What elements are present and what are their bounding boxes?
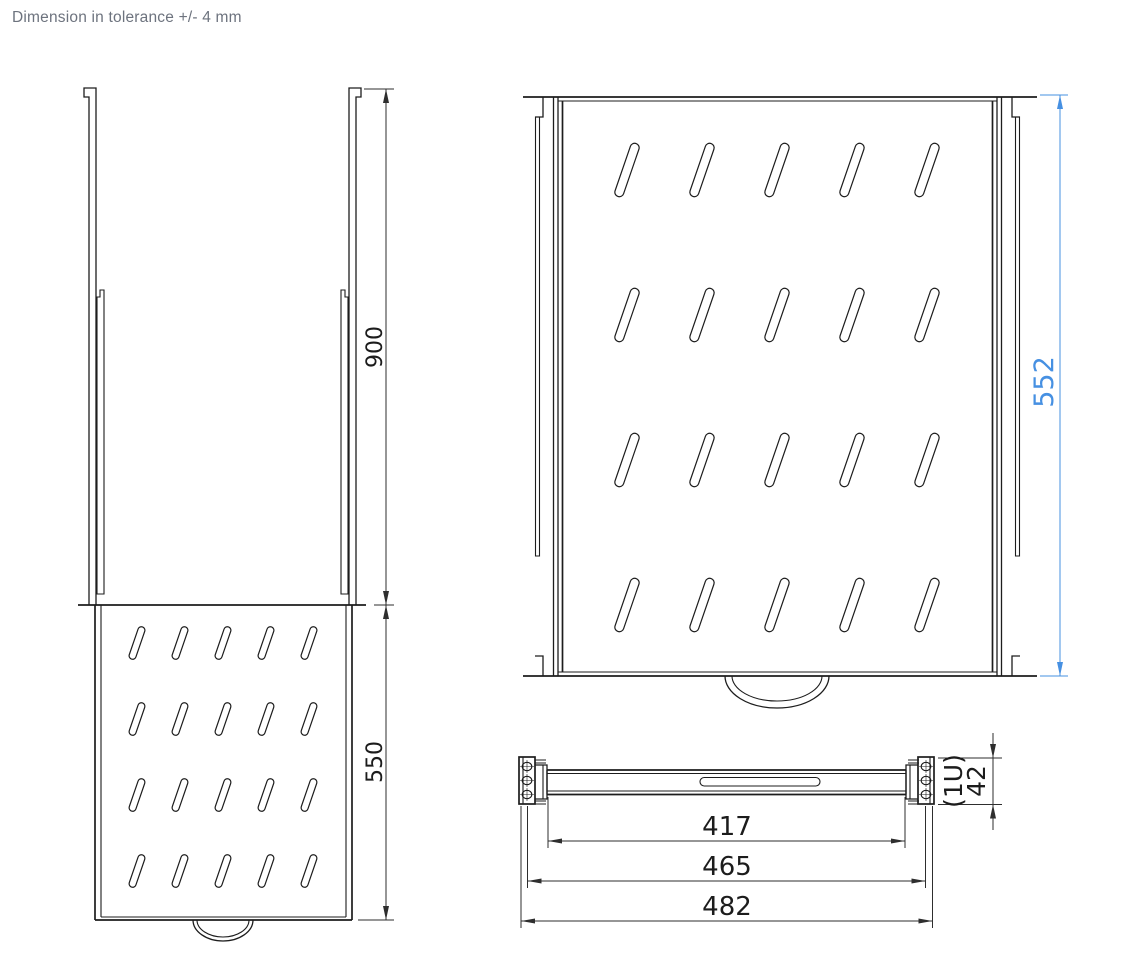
side-left-slide-rail <box>97 290 104 594</box>
arrowhead <box>548 839 562 844</box>
vent-slot <box>914 577 941 633</box>
top-handle <box>725 676 829 708</box>
vent-slot <box>128 626 146 660</box>
top-left-rail <box>536 97 563 676</box>
drawing-canvas: Dimension in tolerance +/- 4 mm <box>0 0 1147 966</box>
vent-slot <box>689 577 716 633</box>
top-right-rail <box>993 97 1020 676</box>
vent-slot <box>300 626 318 660</box>
vent-slot <box>614 142 641 198</box>
arrowhead <box>1057 662 1063 676</box>
vent-slot <box>614 577 641 633</box>
vent-slot <box>300 854 318 888</box>
vent-slot <box>614 287 641 343</box>
vent-slot <box>171 778 189 812</box>
vent-slot <box>839 577 866 633</box>
vent-slot <box>689 142 716 198</box>
arrowhead <box>383 89 389 103</box>
front-right-block <box>906 765 918 799</box>
vent-slot <box>914 287 941 343</box>
front-left-block <box>535 765 547 799</box>
vent-slot <box>689 432 716 488</box>
top-view <box>523 97 1037 708</box>
technical-drawing: 900 550 <box>0 0 1147 966</box>
dim-label-552: 552 <box>1029 356 1060 408</box>
vent-slot <box>764 142 791 198</box>
side-vent-slots <box>128 626 318 888</box>
vent-slot <box>171 854 189 888</box>
vent-slot <box>171 702 189 736</box>
vent-slot <box>257 626 275 660</box>
front-view <box>519 757 934 804</box>
vent-slot <box>128 778 146 812</box>
dim-shelf-depth-top: 552 <box>1029 95 1068 676</box>
dim-rail-length: 900 <box>358 89 394 920</box>
dim-label-550: 550 <box>363 741 388 783</box>
vent-slot <box>764 287 791 343</box>
side-view <box>78 88 366 941</box>
dim-label-42: 42 <box>962 765 991 797</box>
vent-slot <box>839 287 866 343</box>
dim-width-inner: 417 <box>548 797 905 848</box>
arrowhead <box>891 839 905 844</box>
front-right-bracket <box>906 757 934 804</box>
screw-holes-right <box>919 760 933 801</box>
dim-height-1u: (1U) 42 <box>938 733 1002 830</box>
front-left-bracket <box>519 757 547 804</box>
vent-slot <box>300 778 318 812</box>
side-right-rail <box>341 88 361 605</box>
dim-label-417: 417 <box>702 812 752 842</box>
front-bar <box>547 770 906 795</box>
vent-slot <box>257 702 275 736</box>
vent-slot <box>764 577 791 633</box>
vent-slot <box>614 432 641 488</box>
vent-slot <box>128 854 146 888</box>
arrowhead <box>528 879 542 884</box>
arrowhead <box>919 919 933 924</box>
vent-slot <box>214 702 232 736</box>
vent-slot <box>214 626 232 660</box>
dim-shelf-depth-side: 550 <box>363 605 389 920</box>
arrowhead <box>1057 95 1063 109</box>
arrowhead <box>990 744 996 758</box>
vent-slot <box>214 778 232 812</box>
dim-label-465: 465 <box>702 852 752 882</box>
vent-slot <box>171 626 189 660</box>
vent-slot <box>214 854 232 888</box>
vent-slot <box>764 432 791 488</box>
top-vent-slots <box>614 142 941 633</box>
dim-label-900: 900 <box>363 326 388 368</box>
arrowhead <box>521 919 535 924</box>
vent-slot <box>914 432 941 488</box>
vent-slot <box>128 702 146 736</box>
vent-slot <box>300 702 318 736</box>
arrowhead <box>990 805 996 819</box>
dim-label-482: 482 <box>702 892 752 922</box>
vent-slot <box>839 432 866 488</box>
side-right-slide-rail <box>341 290 348 594</box>
vent-slot <box>914 142 941 198</box>
arrowhead <box>383 605 389 619</box>
vent-slot <box>839 142 866 198</box>
vent-slot <box>257 778 275 812</box>
screw-holes-left <box>520 760 534 801</box>
vent-slot <box>689 287 716 343</box>
arrowhead <box>383 906 389 920</box>
side-left-rail <box>84 88 104 605</box>
arrowhead <box>383 591 389 605</box>
front-handle-slot <box>700 778 820 787</box>
side-handle <box>193 920 253 941</box>
vent-slot <box>257 854 275 888</box>
arrowhead <box>912 879 926 884</box>
